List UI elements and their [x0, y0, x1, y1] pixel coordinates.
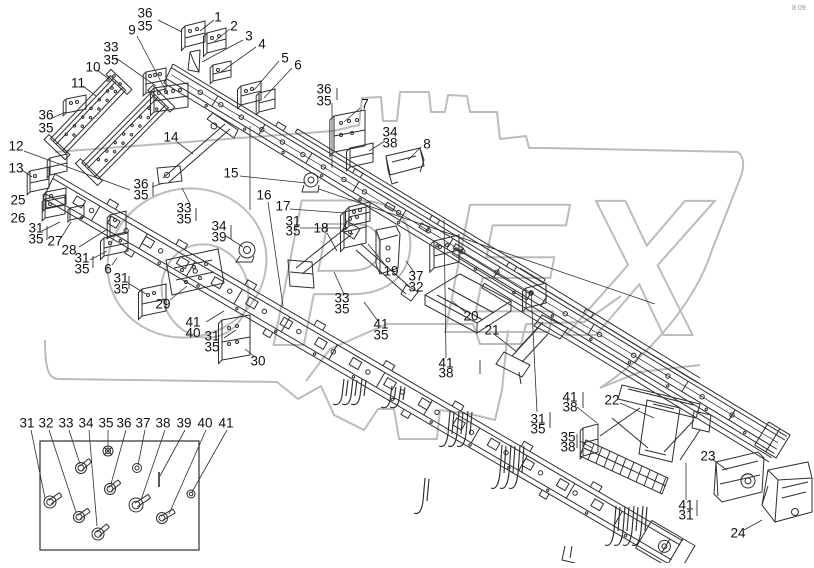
- svg-text:24: 24: [730, 526, 746, 541]
- svg-text:26: 26: [10, 211, 25, 226]
- svg-text:29: 29: [155, 297, 170, 312]
- svg-text:39: 39: [211, 230, 226, 245]
- svg-text:6: 6: [294, 58, 302, 73]
- svg-text:16: 16: [256, 188, 271, 203]
- svg-text:9: 9: [128, 23, 136, 38]
- svg-text:32: 32: [408, 280, 423, 295]
- svg-text:40: 40: [197, 416, 212, 431]
- svg-text:41: 41: [218, 416, 233, 431]
- svg-text:Х: Х: [566, 159, 715, 377]
- svg-text:37: 37: [135, 416, 150, 431]
- svg-text:15: 15: [223, 166, 238, 181]
- svg-text:35: 35: [74, 262, 89, 277]
- svg-text:35: 35: [176, 212, 191, 227]
- svg-text:38: 38: [560, 440, 575, 455]
- svg-text:14: 14: [163, 130, 179, 145]
- svg-text:6: 6: [104, 262, 112, 277]
- svg-text:38: 38: [382, 136, 397, 151]
- svg-text:35: 35: [28, 232, 43, 247]
- svg-text:35: 35: [334, 302, 349, 317]
- svg-text:35: 35: [133, 188, 148, 203]
- svg-text:21: 21: [484, 323, 499, 338]
- svg-text:35: 35: [38, 121, 53, 136]
- svg-text:35: 35: [103, 53, 118, 68]
- svg-text:22: 22: [604, 393, 619, 408]
- svg-text:35: 35: [137, 19, 152, 34]
- svg-text:25: 25: [10, 193, 25, 208]
- svg-text:23: 23: [700, 449, 715, 464]
- svg-text:32: 32: [38, 416, 53, 431]
- svg-text:35: 35: [316, 94, 331, 109]
- svg-text:Е: Е: [442, 166, 570, 372]
- svg-text:38: 38: [438, 366, 453, 381]
- svg-text:5: 5: [281, 51, 289, 66]
- svg-text:17: 17: [275, 199, 290, 214]
- svg-text:1: 1: [214, 10, 222, 25]
- svg-text:7: 7: [361, 97, 369, 112]
- svg-text:11: 11: [71, 76, 85, 91]
- svg-text:2: 2: [230, 19, 238, 34]
- svg-text:38: 38: [562, 400, 577, 415]
- svg-text:4: 4: [258, 37, 266, 52]
- svg-text:40: 40: [185, 326, 200, 341]
- svg-text:8 09: 8 09: [792, 5, 806, 12]
- svg-text:18: 18: [313, 221, 328, 236]
- svg-text:35: 35: [98, 416, 113, 431]
- svg-text:34: 34: [78, 416, 94, 431]
- svg-text:30: 30: [250, 354, 265, 369]
- svg-text:35: 35: [204, 340, 219, 355]
- svg-text:35: 35: [285, 224, 300, 239]
- svg-text:31: 31: [678, 508, 693, 523]
- svg-text:35: 35: [113, 282, 128, 297]
- svg-text:12: 12: [8, 139, 23, 154]
- svg-text:13: 13: [8, 161, 23, 176]
- svg-text:19: 19: [383, 264, 398, 279]
- svg-text:39: 39: [176, 416, 191, 431]
- svg-text:33: 33: [58, 416, 73, 431]
- svg-text:35: 35: [530, 422, 545, 437]
- svg-text:10: 10: [85, 60, 100, 75]
- svg-text:31: 31: [19, 416, 34, 431]
- svg-text:38: 38: [155, 416, 170, 431]
- svg-text:36: 36: [116, 416, 131, 431]
- svg-text:8: 8: [423, 137, 431, 152]
- svg-text:27: 27: [47, 234, 62, 249]
- svg-text:3: 3: [245, 29, 253, 44]
- svg-text:35: 35: [373, 328, 388, 343]
- svg-text:20: 20: [463, 309, 478, 324]
